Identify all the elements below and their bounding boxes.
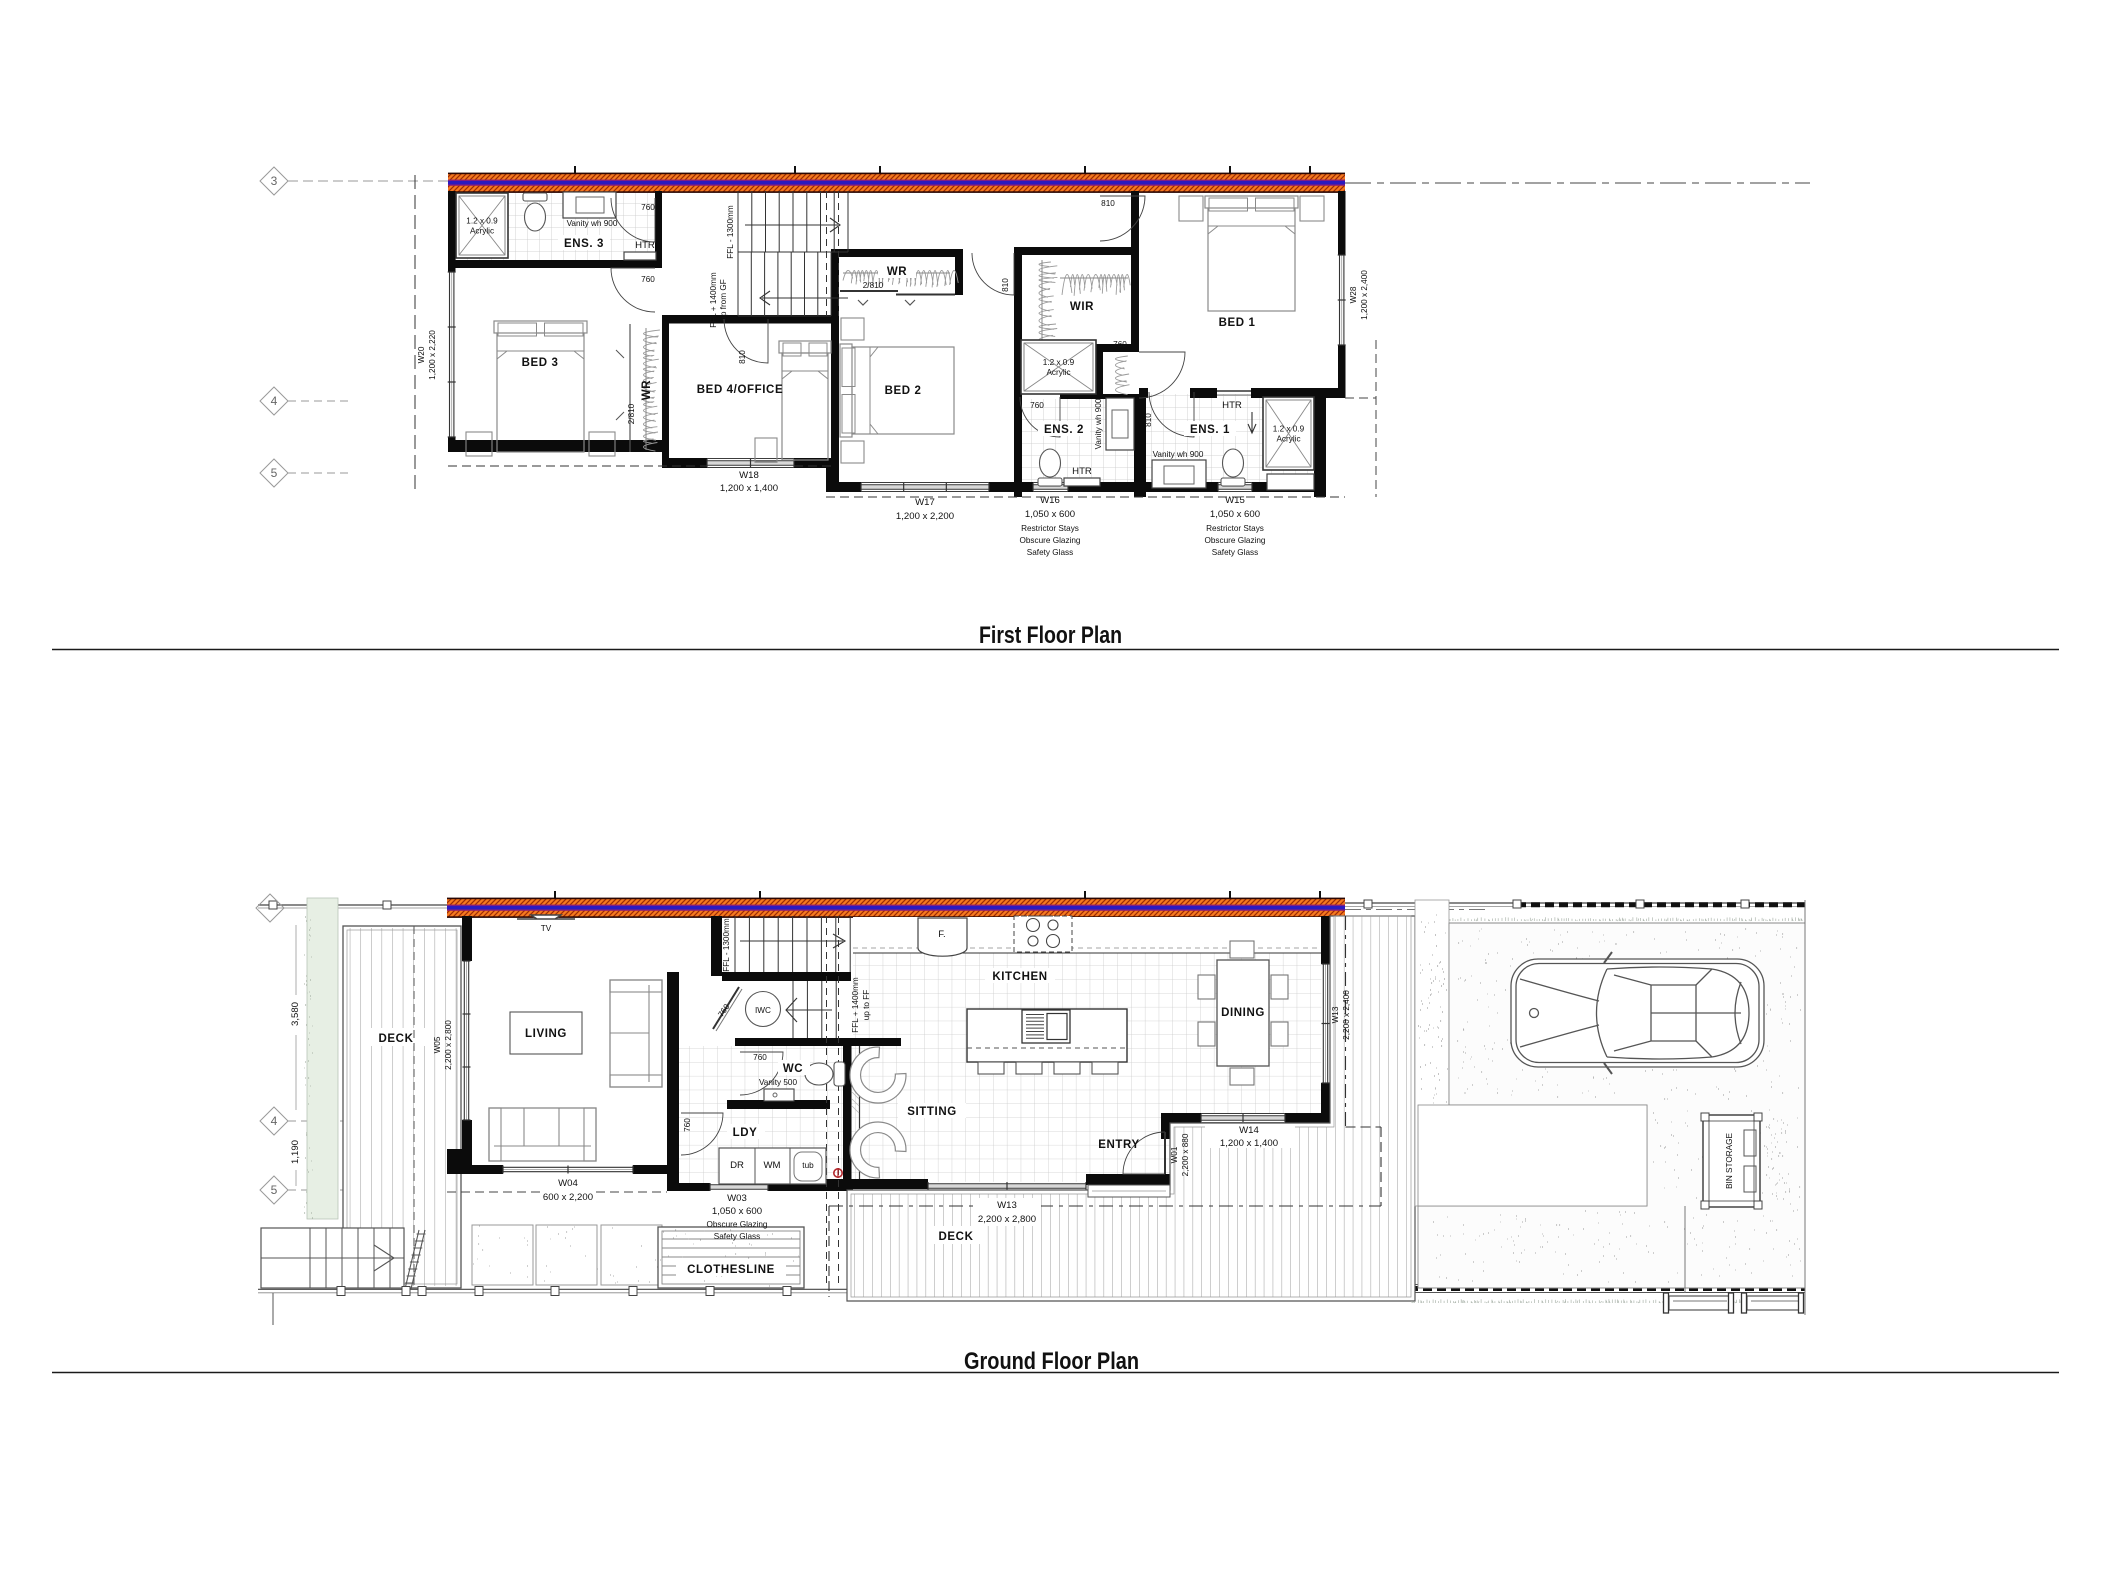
svg-text:HTR: HTR (1072, 466, 1092, 477)
svg-text:1.2 x 0.9: 1.2 x 0.9 (1043, 358, 1075, 367)
svg-text:1,200 x 2,220: 1,200 x 2,220 (428, 330, 437, 380)
svg-text:up from GF: up from GF (719, 279, 728, 320)
svg-text:Vanity wh 900: Vanity wh 900 (567, 219, 618, 228)
svg-text:Obscure Glazing: Obscure Glazing (1020, 536, 1081, 545)
svg-text:W05: W05 (433, 1036, 442, 1053)
svg-text:3: 3 (271, 174, 278, 188)
svg-text:TV: TV (541, 924, 552, 933)
svg-text:W20: W20 (417, 346, 426, 363)
svg-text:2/810: 2/810 (627, 403, 636, 424)
svg-text:Restrictor Stays: Restrictor Stays (1206, 524, 1264, 533)
svg-text:DECK: DECK (379, 1033, 414, 1045)
svg-text:FFL - 1300mm: FFL - 1300mm (722, 918, 731, 972)
svg-text:2,200 x 880: 2,200 x 880 (1181, 1133, 1190, 1176)
svg-text:FFL + 1400mm: FFL + 1400mm (709, 272, 718, 328)
svg-text:Safety Glass: Safety Glass (714, 1232, 760, 1241)
svg-text:KITCHEN: KITCHEN (992, 971, 1047, 983)
svg-text:Safety Glass: Safety Glass (1212, 548, 1258, 557)
svg-text:ENS. 3: ENS. 3 (564, 238, 604, 250)
svg-text:HTR: HTR (1222, 400, 1242, 411)
svg-text:2,200 x 2,800: 2,200 x 2,800 (978, 1214, 1036, 1225)
svg-text:Vanity wh 900: Vanity wh 900 (1153, 450, 1204, 459)
svg-text:BED 4/OFFICE: BED 4/OFFICE (697, 384, 783, 396)
svg-text:810: 810 (1144, 413, 1153, 427)
svg-text:CLOTHESLINE: CLOTHESLINE (687, 1264, 775, 1276)
svg-text:810: 810 (1101, 199, 1115, 208)
svg-text:4: 4 (271, 394, 278, 408)
svg-text:760: 760 (641, 275, 655, 284)
svg-text:760: 760 (753, 1053, 767, 1062)
svg-text:760: 760 (1113, 340, 1127, 349)
svg-text:W13: W13 (997, 1200, 1017, 1211)
svg-text:1,200 x 1,400: 1,200 x 1,400 (1220, 1138, 1278, 1149)
svg-text:WIR: WIR (1070, 301, 1094, 313)
svg-text:Acrylic: Acrylic (1046, 368, 1070, 377)
svg-text:WR: WR (887, 266, 907, 278)
svg-text:810: 810 (1001, 278, 1010, 292)
svg-text:4: 4 (271, 1114, 278, 1128)
svg-text:2,200 x 2,800: 2,200 x 2,800 (444, 1020, 453, 1070)
svg-text:1.2 x 0.9: 1.2 x 0.9 (1273, 425, 1305, 434)
svg-text:WR: WR (641, 380, 653, 400)
svg-text:5: 5 (271, 466, 278, 480)
svg-text:IWC: IWC (755, 1006, 771, 1015)
svg-text:Obscure Glazing: Obscure Glazing (1205, 536, 1266, 545)
svg-text:DECK: DECK (939, 1231, 974, 1243)
svg-text:Ground Floor Plan: Ground Floor Plan (964, 1348, 1139, 1375)
svg-text:F.: F. (938, 929, 945, 940)
svg-text:1,200 x 1,400: 1,200 x 1,400 (720, 483, 778, 494)
svg-text:W04: W04 (558, 1178, 578, 1189)
svg-text:SITTING: SITTING (907, 1106, 957, 1118)
svg-text:WM: WM (763, 1160, 780, 1171)
svg-text:LDY: LDY (733, 1127, 758, 1139)
svg-text:W03: W03 (727, 1193, 747, 1204)
svg-text:Vanity 500: Vanity 500 (759, 1078, 798, 1087)
svg-text:ENS. 2: ENS. 2 (1044, 424, 1084, 436)
svg-text:Obscure Glazing: Obscure Glazing (707, 1220, 768, 1229)
svg-text:tub: tub (802, 1161, 814, 1170)
svg-text:W17: W17 (915, 497, 935, 508)
svg-text:LIVING: LIVING (525, 1028, 567, 1040)
svg-text:BED 1: BED 1 (1219, 317, 1256, 329)
svg-text:W13: W13 (1331, 1006, 1340, 1023)
svg-text:1,190: 1,190 (290, 1140, 301, 1164)
svg-text:ENS. 1: ENS. 1 (1190, 424, 1230, 436)
svg-text:3,580: 3,580 (290, 1002, 301, 1026)
svg-text:Vanity wh 900: Vanity wh 900 (1094, 398, 1103, 449)
svg-text:5: 5 (271, 1183, 278, 1197)
svg-text:1,050 x 600: 1,050 x 600 (1210, 509, 1260, 520)
svg-text:1,200 x 2,200: 1,200 x 2,200 (896, 511, 954, 522)
svg-text:BIN STORAGE: BIN STORAGE (1725, 1133, 1734, 1189)
svg-text:Restrictor Stays: Restrictor Stays (1021, 524, 1079, 533)
svg-text:1,050 x 600: 1,050 x 600 (1025, 509, 1075, 520)
svg-text:760: 760 (641, 203, 655, 212)
svg-text:1.2 x 0.9: 1.2 x 0.9 (466, 217, 498, 226)
svg-text:760: 760 (683, 1118, 692, 1132)
svg-text:W01: W01 (1170, 1146, 1179, 1163)
svg-text:1,200 x 2,400: 1,200 x 2,400 (1360, 270, 1369, 320)
svg-text:W14: W14 (1239, 1125, 1259, 1136)
svg-text:WC: WC (783, 1063, 803, 1075)
svg-text:W18: W18 (739, 470, 759, 481)
svg-text:760: 760 (1030, 401, 1044, 410)
svg-text:1,050 x 600: 1,050 x 600 (712, 1206, 762, 1217)
svg-text:BED 2: BED 2 (885, 385, 922, 397)
svg-text:ENTRY: ENTRY (1098, 1139, 1140, 1151)
svg-text:up to FF: up to FF (862, 990, 871, 1021)
svg-text:DINING: DINING (1221, 1007, 1265, 1019)
svg-text:Acrylic: Acrylic (1276, 435, 1300, 444)
svg-text:2,200 x 2,400: 2,200 x 2,400 (1342, 990, 1351, 1040)
svg-text:First Floor Plan: First Floor Plan (979, 622, 1122, 649)
svg-text:DR: DR (730, 1160, 744, 1171)
svg-text:Acrylic: Acrylic (470, 227, 494, 236)
svg-text:W28: W28 (1349, 286, 1358, 303)
svg-text:FFL - 1300mm: FFL - 1300mm (726, 205, 735, 259)
svg-text:BED 3: BED 3 (522, 357, 559, 369)
svg-text:Safety Glass: Safety Glass (1027, 548, 1073, 557)
svg-text:600 x 2,200: 600 x 2,200 (543, 1192, 593, 1203)
svg-text:FFL + 1400mm: FFL + 1400mm (851, 977, 860, 1033)
svg-text:2/810: 2/810 (863, 281, 884, 290)
svg-text:810: 810 (738, 350, 747, 364)
